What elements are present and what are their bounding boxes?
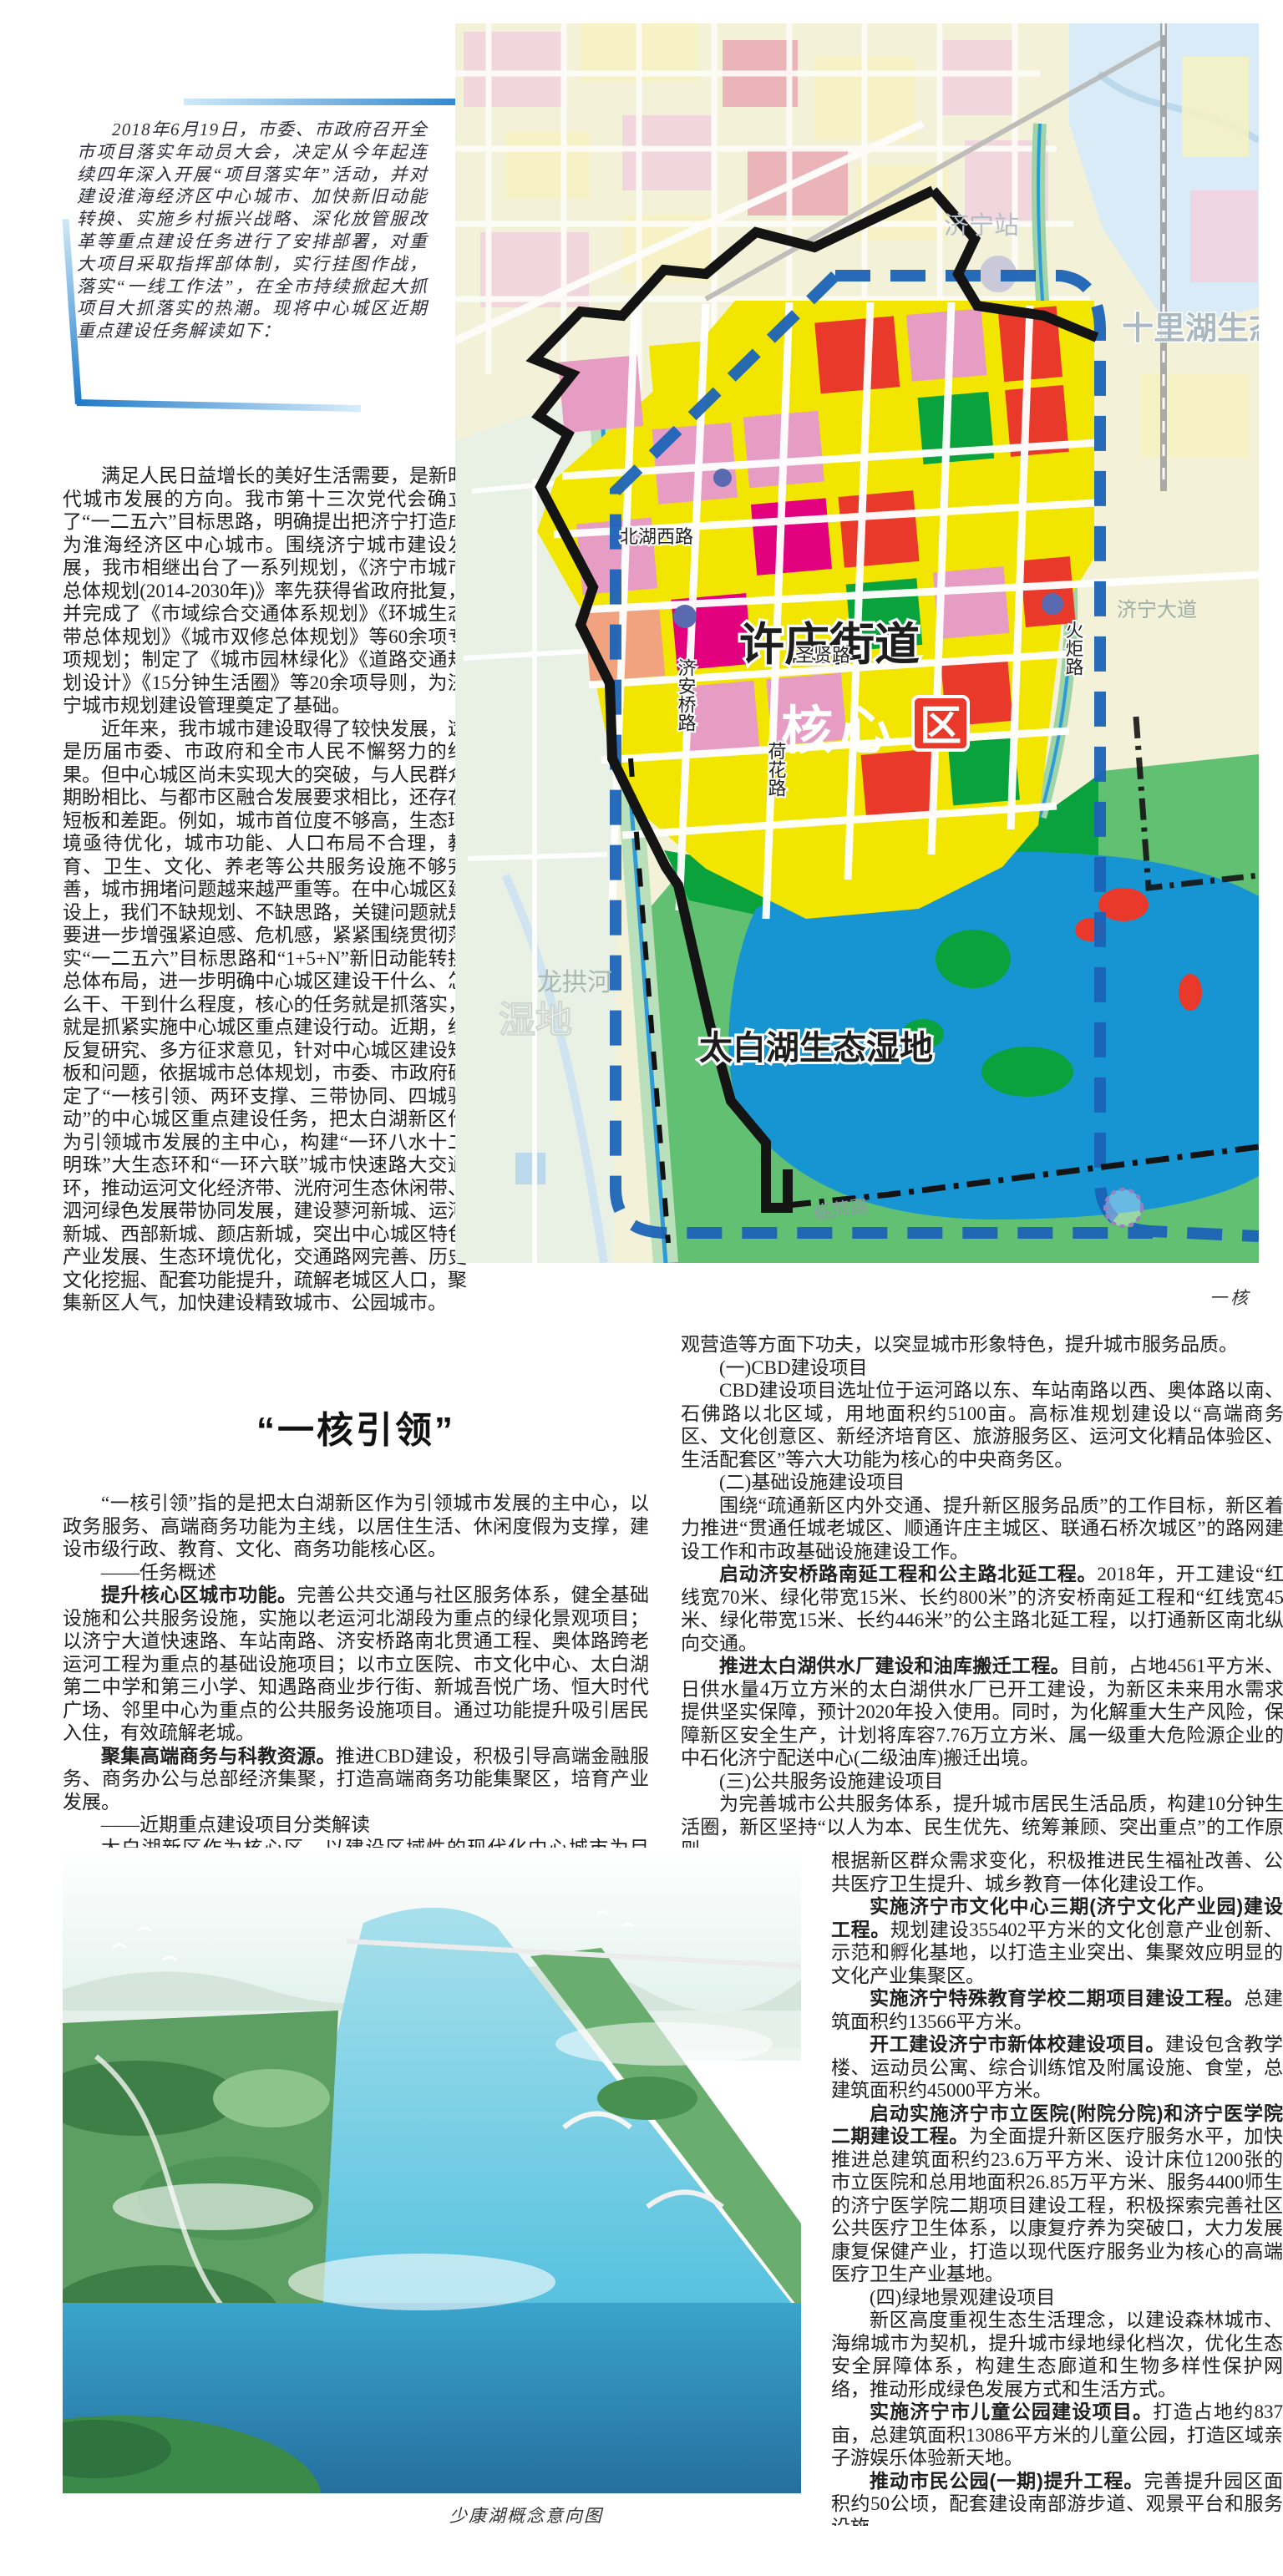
map-label-core-area: 核心 bbox=[781, 702, 898, 760]
planning-map: 许庄街道 核心 区 太白湖生态湿地 龙拱河 济宁大道 北湖西路 圣贤路 济安桥路… bbox=[455, 23, 1259, 1263]
intro-quote-box: 2018年6月19日，市委、市政府召开全市项目落实年动员大会，决定从今年起连续四… bbox=[58, 94, 444, 414]
intro-paragraph: 2018年6月19日，市委、市政府召开全市项目落实年动员大会，决定从今年起连续四… bbox=[77, 119, 428, 342]
map-label-jining-avenue: 济宁大道 bbox=[1117, 599, 1197, 621]
paragraph: 启动实施济宁市立医院(附院分院)和济宁医学院二期建设工程。为全面提升新区医疗服务… bbox=[831, 2102, 1283, 2286]
list-head: (四)绿地景观建设项目 bbox=[831, 2286, 1283, 2310]
paragraph: CBD建设项目选址位于运河路以东、车站南路以西、奥体路以南、石佛路以北区域，用地… bbox=[681, 1379, 1283, 1471]
paragraph-lead: 实施济宁特殊教育学校二期项目建设工程。 bbox=[870, 1987, 1244, 2009]
map-caption: 一核 bbox=[1209, 1285, 1251, 1310]
paragraph: 推动市民公园(一期)提升工程。完善提升园区面积约50公顷，配套建设南部游步道、观… bbox=[831, 2470, 1283, 2527]
list-head: (二)基础设施建设项目 bbox=[681, 1471, 1283, 1494]
subhead-dash: ——任务概述 bbox=[63, 1561, 649, 1585]
paragraph: 为完善城市公共服务体系，提升城市居民生活品质，构建10分钟生活圈，新区坚持“以人… bbox=[681, 1793, 1283, 1848]
paragraph-lead: 推动市民公园(一期)提升工程。 bbox=[870, 2470, 1144, 2492]
paragraph: 推进太白湖供水厂建设和油库搬迁工程。目前，占地4561平方米、日供水量4万立方米… bbox=[681, 1655, 1283, 1770]
shaokang-lake-photo bbox=[63, 1848, 801, 2493]
map-label-shengxian-road: 圣贤路 bbox=[795, 645, 850, 666]
list-head: (一)CBD建设项目 bbox=[681, 1356, 1283, 1380]
paragraph: 新区高度重视生态生活理念，以建设森林城市、海绵城市为契机，提升城市绿地绿化档次，… bbox=[831, 2309, 1283, 2401]
map-label-shilihu-wetland: 十里湖生态 bbox=[1122, 312, 1259, 347]
paragraph-lead: 实施济宁市儿童公园建设项目。 bbox=[870, 2401, 1153, 2422]
frame-top-right-bar bbox=[184, 99, 493, 105]
paragraph-rest: 完善公共交通与社区服务体系，健全基础设施和公共服务设施，实施以老运河北湖段为重点… bbox=[63, 1585, 649, 1743]
column-right: 观营造等方面下功夫，以突显城市形象特色，提升城市服务品质。 (一)CBD建设项目… bbox=[681, 1333, 1283, 1848]
map-label-beihu-west-road: 北湖西路 bbox=[620, 526, 693, 547]
paragraph: 根据新区群众需求变化，积极推进民生福祉改善、公共医疗卫生提升、城乡教育一体化建设… bbox=[831, 1849, 1283, 1895]
paragraph: 开工建设济宁市新体校建设项目。建设包含教学楼、运动员公寓、综合训练馆及附属设施、… bbox=[831, 2033, 1283, 2102]
photo-caption: 少康湖概念意向图 bbox=[449, 2502, 603, 2528]
map-label-jianqiao-road: 济安桥路 bbox=[676, 658, 697, 732]
paragraph: 聚集高端商务与科教资源。推进CBD建设，积极引导高端金融服务、商务办公与总部经济… bbox=[63, 1745, 649, 1814]
map-label-huoju-road: 火炬路 bbox=[1063, 621, 1084, 676]
paragraph-lead: 开工建设济宁市新体校建设项目。 bbox=[870, 2033, 1165, 2055]
paragraph-rest: 为全面提升新区医疗服务水平，加快推进总建筑面积约23.6万平方米、设计床位120… bbox=[831, 2126, 1283, 2284]
paragraph-lead: 聚集高端商务与科教资源。 bbox=[101, 1745, 336, 1767]
paragraph: 围绕“疏通新区内外交通、提升新区服务品质”的工作目标，新区着力推进“贯通任城老城… bbox=[681, 1494, 1283, 1564]
column-right-narrow: 根据新区群众需求变化，积极推进民生福祉改善、公共医疗卫生提升、城乡教育一体化建设… bbox=[831, 1849, 1283, 2526]
paragraph-rest: 规划建设355402平方米的文化创意产业创新、示范和孵化基地，以打造主业突出、集… bbox=[831, 1919, 1283, 1986]
map-label-longgong-river: 龙拱河 bbox=[537, 969, 612, 996]
paragraph: 实施济宁特殊教育学校二期项目建设工程。总建筑面积约13566平方米。 bbox=[831, 1987, 1283, 2033]
paragraph-lead: 推进太白湖供水厂建设和油库搬迁工程。 bbox=[719, 1655, 1070, 1676]
paragraph: 满足人民日益增长的美好生活需要，是新时代城市发展的方向。我市第十三次党代会确立了… bbox=[63, 464, 467, 718]
column-left-wide: “一核引领”指的是把太白湖新区作为引领城市发展的主中心，以政务服务、高端商务功能… bbox=[63, 1492, 649, 1905]
paragraph: “一核引领”指的是把太白湖新区作为引领城市发展的主中心，以政务服务、高端商务功能… bbox=[63, 1492, 649, 1561]
map-label-jining-station: 济宁站 bbox=[944, 212, 1019, 240]
section-heading: “一核引领” bbox=[63, 1400, 649, 1453]
paragraph: 观营造等方面下功夫，以突显城市形象特色，提升城市服务品质。 bbox=[681, 1333, 1283, 1356]
paragraph-lead: 启动济安桥路南延工程和公主路北延工程。 bbox=[719, 1563, 1097, 1585]
map-label-core-area-qu: 区 bbox=[920, 702, 961, 749]
paragraph: 提升核心区城市功能。完善公共交通与社区服务体系，健全基础设施和公共服务设施，实施… bbox=[63, 1584, 649, 1745]
list-head: (三)公共服务设施建设项目 bbox=[681, 1770, 1283, 1793]
frame-bottom-bar bbox=[77, 399, 361, 412]
column-left: 满足人民日益增长的美好生活需要，是新时代城市发展的方向。我市第十三次党代会确立了… bbox=[63, 464, 467, 1315]
paragraph: 启动济安桥路南延工程和公主路北延工程。2018年，开工建设“红线宽70米、绿化带… bbox=[681, 1563, 1283, 1655]
paragraph: 实施济宁市文化中心三期(济宁文化产业园)建设工程。规划建设355402平方米的文… bbox=[831, 1895, 1283, 1987]
paragraph-lead: 提升核心区城市功能。 bbox=[101, 1584, 297, 1605]
map-label-wetland-west: 湿地 bbox=[499, 1000, 572, 1041]
paragraph: 近年来，我市城市建设取得了较快发展，这是历届市委、市政府和全市人民不懈努力的结果… bbox=[63, 718, 467, 1315]
map-label-hehua-road: 荷花路 bbox=[766, 742, 787, 797]
subhead-dash: ——近期重点建设项目分类解读 bbox=[63, 1813, 649, 1837]
paragraph: 实施济宁市儿童公园建设项目。打造占地约837亩，总建筑面积13086平方米的儿童… bbox=[831, 2401, 1283, 2470]
map-label-taibai-lake-wetland: 太白湖生态湿地 bbox=[699, 1030, 933, 1067]
